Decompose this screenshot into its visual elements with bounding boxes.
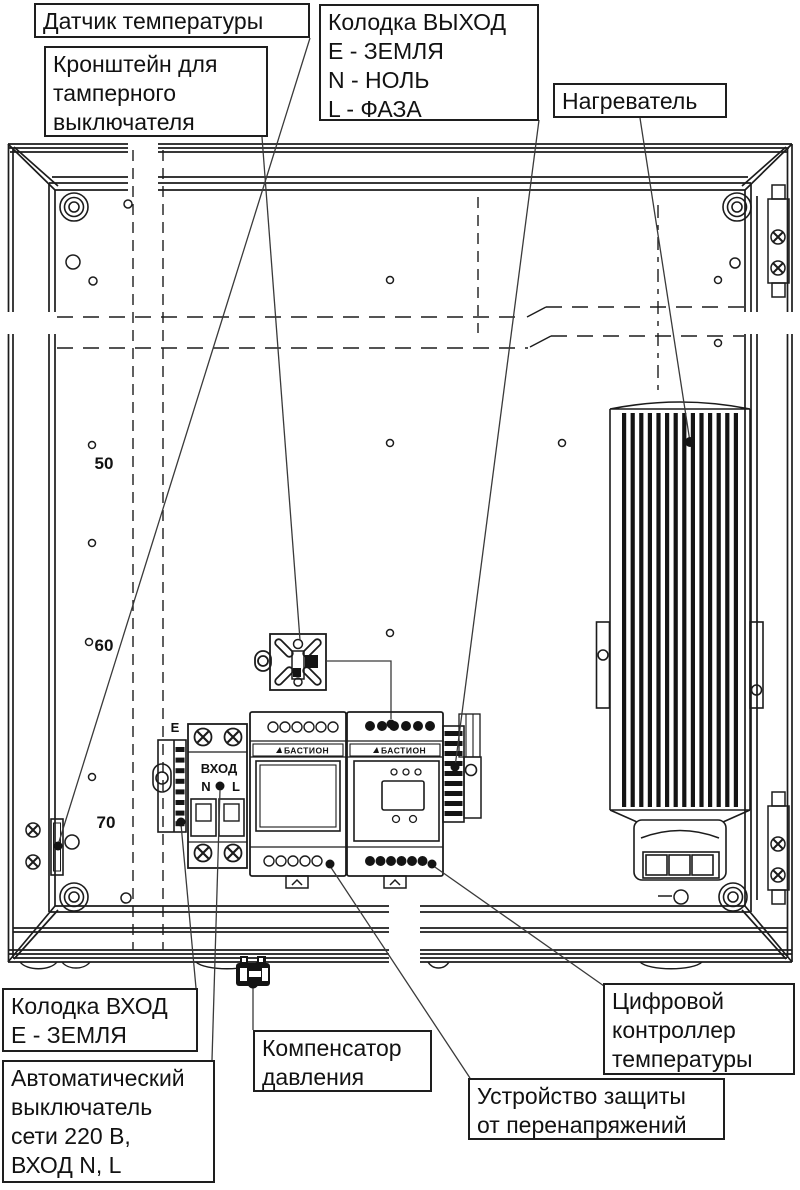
diagram-canvas: 50 60 70 [0,0,800,1190]
left-frame-screws [26,823,40,869]
door-hinge-top [768,185,789,297]
panel-mounting-holes [66,200,740,904]
breaker-vhod-text: ВХОД [201,761,238,776]
tamper-bracket-graphic [255,634,326,690]
surge-front-window [256,761,340,831]
label-heater: Нагреватель [553,83,727,118]
brand-text-left: БАСТИОН [284,746,329,756]
leader-lines [58,38,690,1078]
door-hinge-bottom [768,792,789,904]
label-surge-protector: Устройство защиты от перенапряжений [468,1078,725,1140]
label-tamper-bracket: Кронштейн для тамперного выключателя [44,46,268,137]
label-circuit-breaker: Автоматический выключатель сети 220 В, В… [2,1060,215,1183]
controller-display [382,781,424,810]
circuit-breaker-graphic [188,724,247,868]
heater-fins [622,413,738,807]
scale-mark-60: 60 [95,636,114,655]
breaker-n-text: N [201,779,210,794]
input-earth-mark: Е [171,720,180,735]
breaker-l-text: L [232,779,240,794]
brand-logo-right [373,747,379,753]
label-temperature-sensor: Датчик температуры [34,3,310,38]
brand-text-right: БАСТИОН [381,746,426,756]
heater-graphic [597,402,764,880]
label-input-block: Колодка ВХОД Е - ЗЕМЛЯ [2,988,198,1052]
output-terminal-block [443,714,481,822]
brand-logo-left [276,747,282,753]
scale-mark-70: 70 [97,813,116,832]
label-pressure-compensator: Компенсатор давления [253,1030,432,1092]
label-output-block: Колодка ВЫХОД Е - ЗЕМЛЯ N - НОЛЬ L - ФАЗ… [319,4,539,121]
tamper-switch-wire [326,661,391,719]
scale-mark-50: 50 [95,454,114,473]
label-temp-controller: Цифровой контроллер температуры [603,983,795,1075]
